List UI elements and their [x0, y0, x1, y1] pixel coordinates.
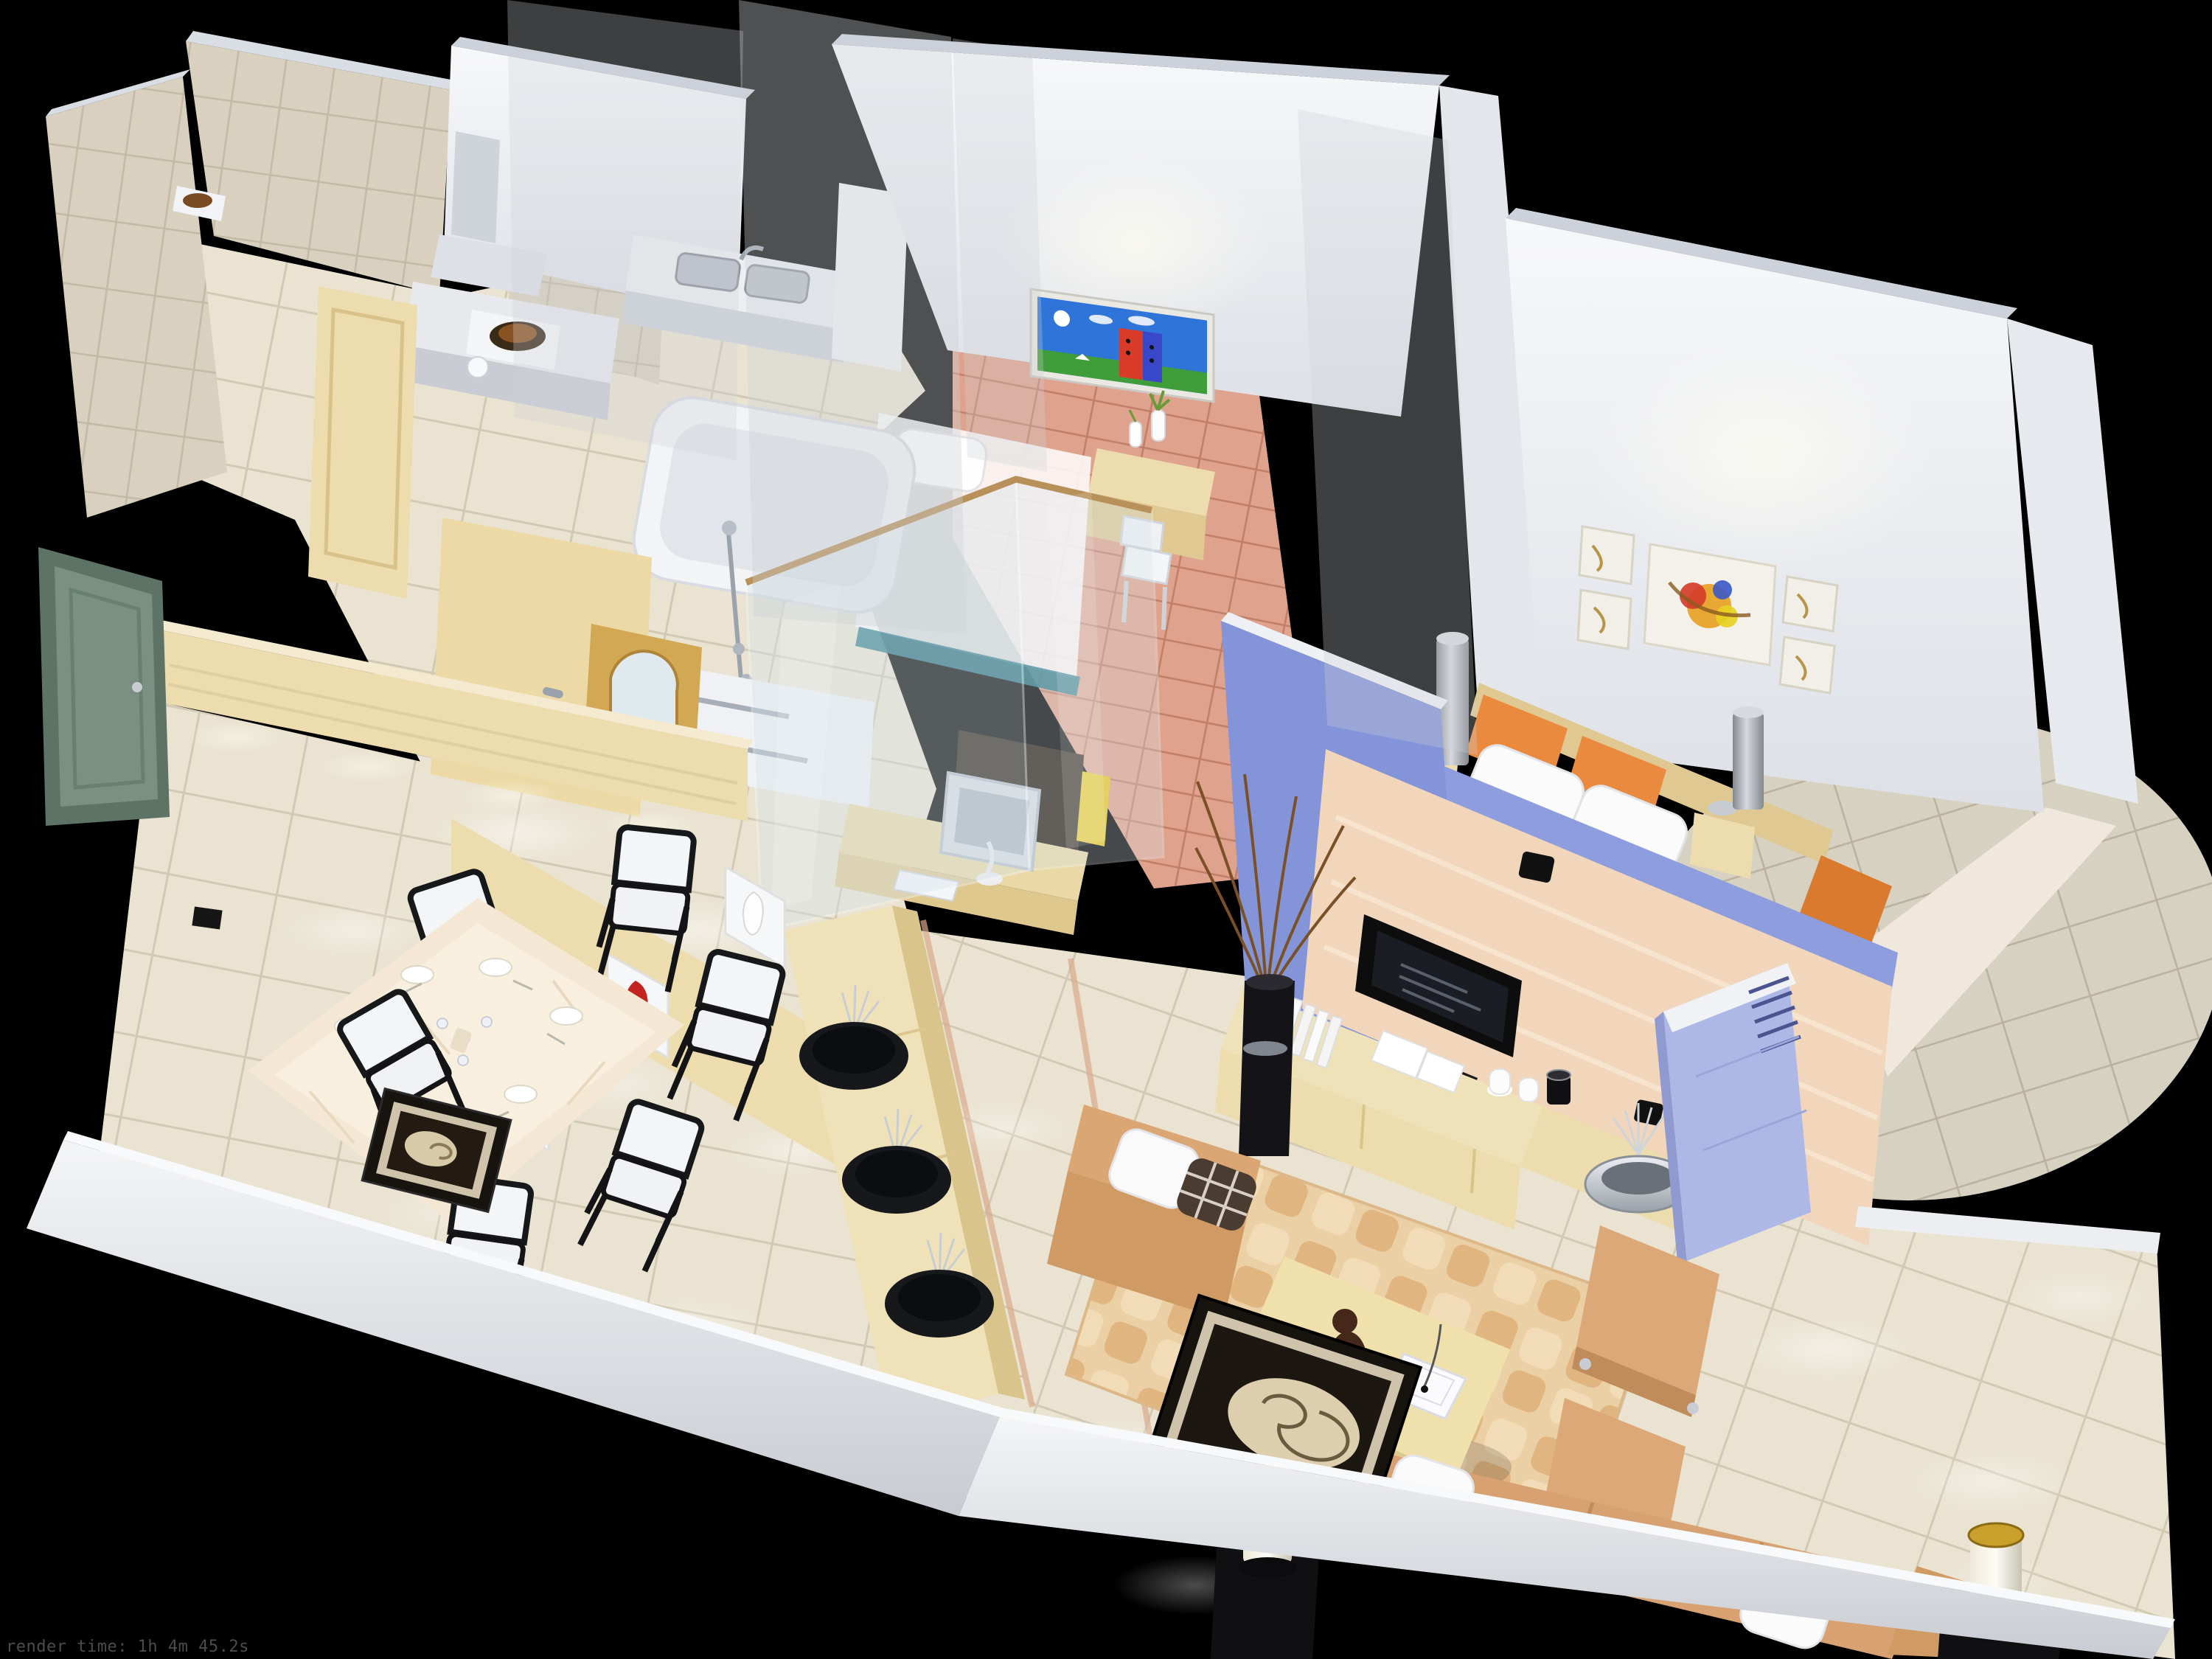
- white-vase: [743, 892, 763, 935]
- under-cabinet-light: [457, 780, 560, 813]
- apartment-3d-render: render time: 1h 4m 45.2s: [0, 0, 2212, 1659]
- ghost-wall: [1298, 109, 1478, 755]
- light-switch: [192, 906, 222, 929]
- painting-lighthouse-red: [1119, 328, 1143, 380]
- plate: [401, 966, 434, 984]
- floor-light-reflection: [280, 902, 428, 959]
- master-wall-glow: [1585, 339, 1939, 575]
- floor-light-reflection: [2006, 1270, 2153, 1326]
- wine-glass: [458, 1055, 468, 1065]
- range-hood-chimney: [451, 131, 500, 243]
- bowl-inner: [898, 1274, 981, 1321]
- render-time-caption: render time: 1h 4m 45.2s: [6, 1638, 249, 1656]
- cylinder-lamp-right: [1733, 712, 1764, 810]
- ghost-wall: [739, 0, 966, 634]
- wine-glass: [481, 1017, 492, 1027]
- vase-body: [1239, 981, 1295, 1156]
- chrome-foot: [1579, 1358, 1591, 1370]
- door-knob: [132, 682, 142, 692]
- cylinder-lamp-top: [1733, 706, 1764, 718]
- entry-door: [38, 547, 170, 826]
- bowl-inner: [855, 1150, 938, 1197]
- plate: [479, 959, 512, 976]
- under-cabinet-light: [184, 721, 288, 754]
- bowl-inner: [1601, 1162, 1675, 1194]
- art-frame-small: [1783, 577, 1837, 631]
- tap-handle: [733, 643, 745, 655]
- floor-light-reflection: [1902, 1450, 2079, 1514]
- shelf-bowl: [183, 193, 212, 208]
- vase-opening: [1246, 974, 1293, 990]
- figurine-head: [1332, 1309, 1357, 1334]
- art-frame-small: [1579, 526, 1634, 584]
- chrome-foot: [1687, 1402, 1699, 1414]
- ghost-wall: [507, 0, 743, 460]
- ghost-wall: [953, 38, 1047, 472]
- kettle: [467, 357, 488, 378]
- wine-glass: [437, 1018, 448, 1029]
- vase-silver-band: [1243, 1041, 1287, 1056]
- plate: [550, 1007, 582, 1025]
- lamp-gold-top: [1969, 1523, 2023, 1547]
- under-cabinet-light: [317, 751, 420, 783]
- bowl-inner: [813, 1026, 895, 1074]
- abstract-art-blue: [1713, 580, 1732, 599]
- lamp-base: [1238, 1557, 1297, 1578]
- white-vase: [1519, 1078, 1538, 1102]
- desk-vase: [1152, 410, 1165, 441]
- incense-holder: [1421, 1385, 1428, 1393]
- white-vase: [1489, 1069, 1510, 1094]
- floor-light-reflection: [1740, 1317, 1917, 1382]
- desk-vase: [1130, 422, 1141, 447]
- art-frame-small: [1780, 637, 1834, 693]
- black-cup-rim: [1547, 1070, 1571, 1080]
- plate: [504, 1085, 537, 1103]
- painting-lighthouse-blue: [1143, 331, 1162, 383]
- shower-head: [722, 521, 737, 535]
